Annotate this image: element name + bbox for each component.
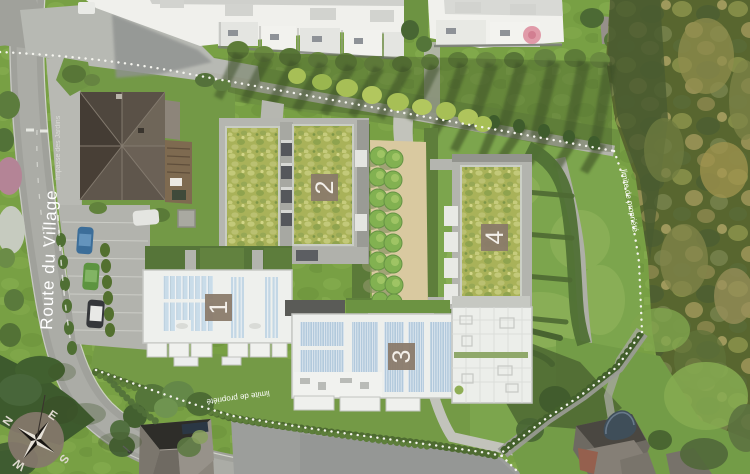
svg-text:Impasse des Jardins: Impasse des Jardins [55, 115, 62, 180]
svg-text:4: 4 [481, 230, 509, 244]
svg-text:1: 1 [205, 301, 233, 315]
svg-text:3: 3 [388, 350, 416, 364]
svg-text:2: 2 [311, 181, 339, 195]
